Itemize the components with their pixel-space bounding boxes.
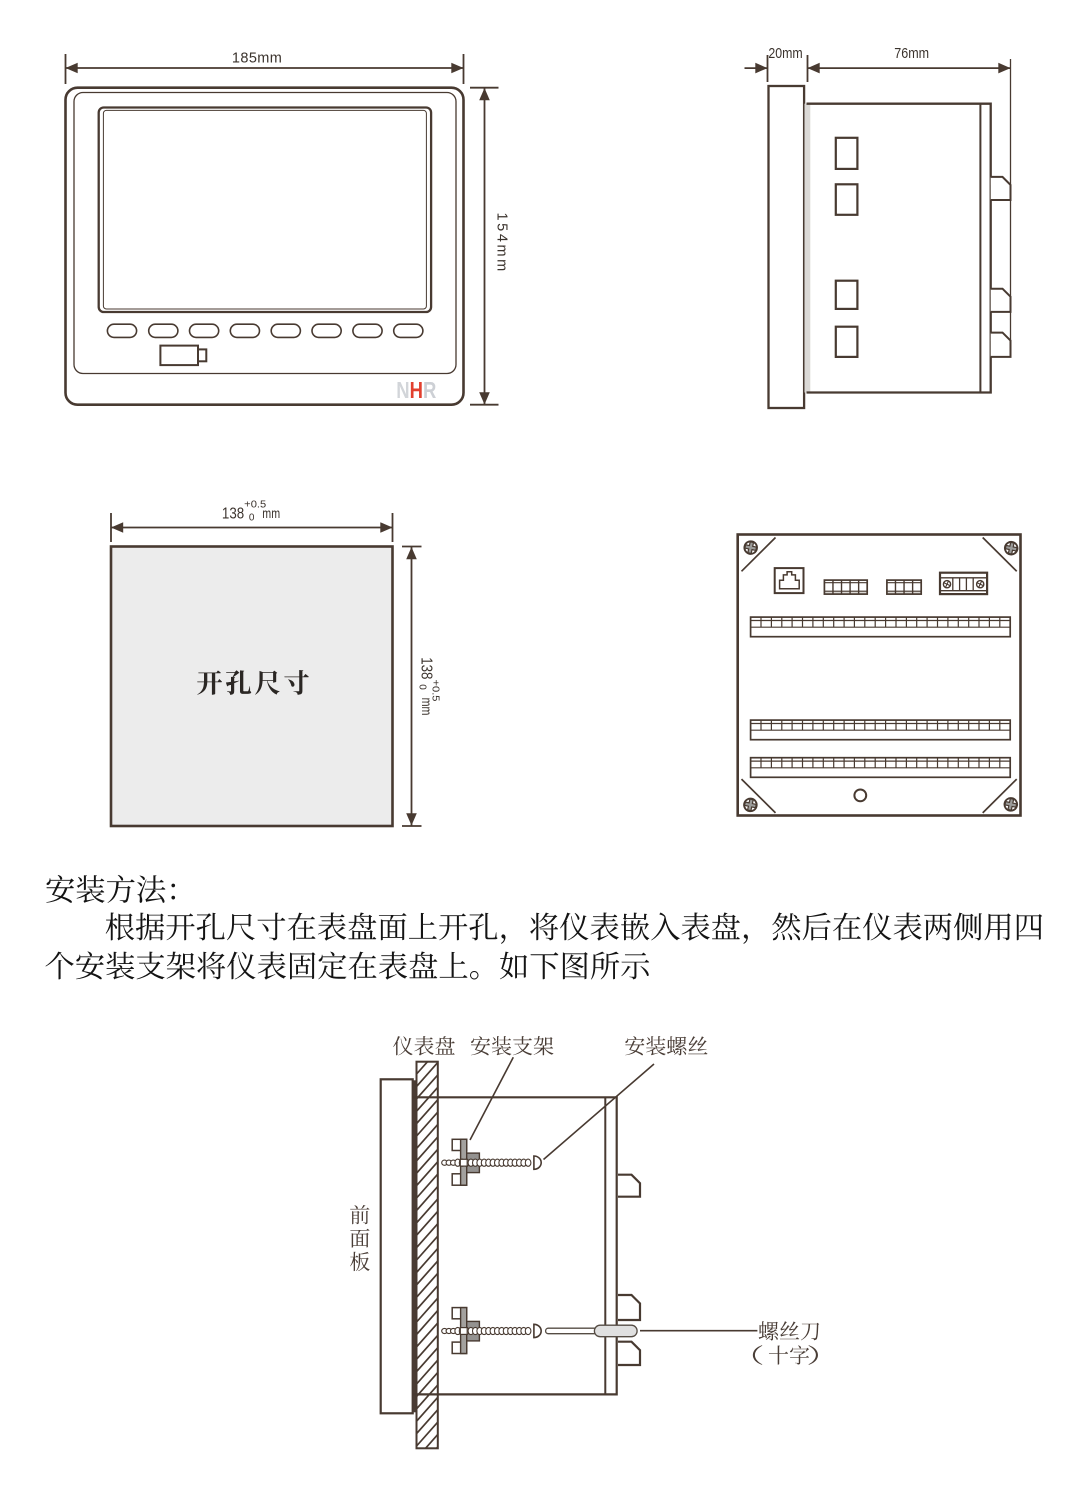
svg-text:20mm: 20mm (768, 45, 802, 62)
svg-text:185mm: 185mm (232, 50, 282, 66)
svg-text:mm: mm (262, 505, 280, 521)
svg-text:0: 0 (249, 513, 255, 524)
svg-text:154mm: 154mm (494, 213, 510, 274)
svg-text:138: 138 (222, 506, 244, 523)
svg-text:138: 138 (418, 657, 435, 679)
svg-text:0: 0 (416, 684, 427, 690)
svg-text:NHR: NHR (396, 377, 436, 403)
svg-text:76mm: 76mm (894, 45, 929, 62)
svg-text:mm: mm (419, 698, 435, 716)
